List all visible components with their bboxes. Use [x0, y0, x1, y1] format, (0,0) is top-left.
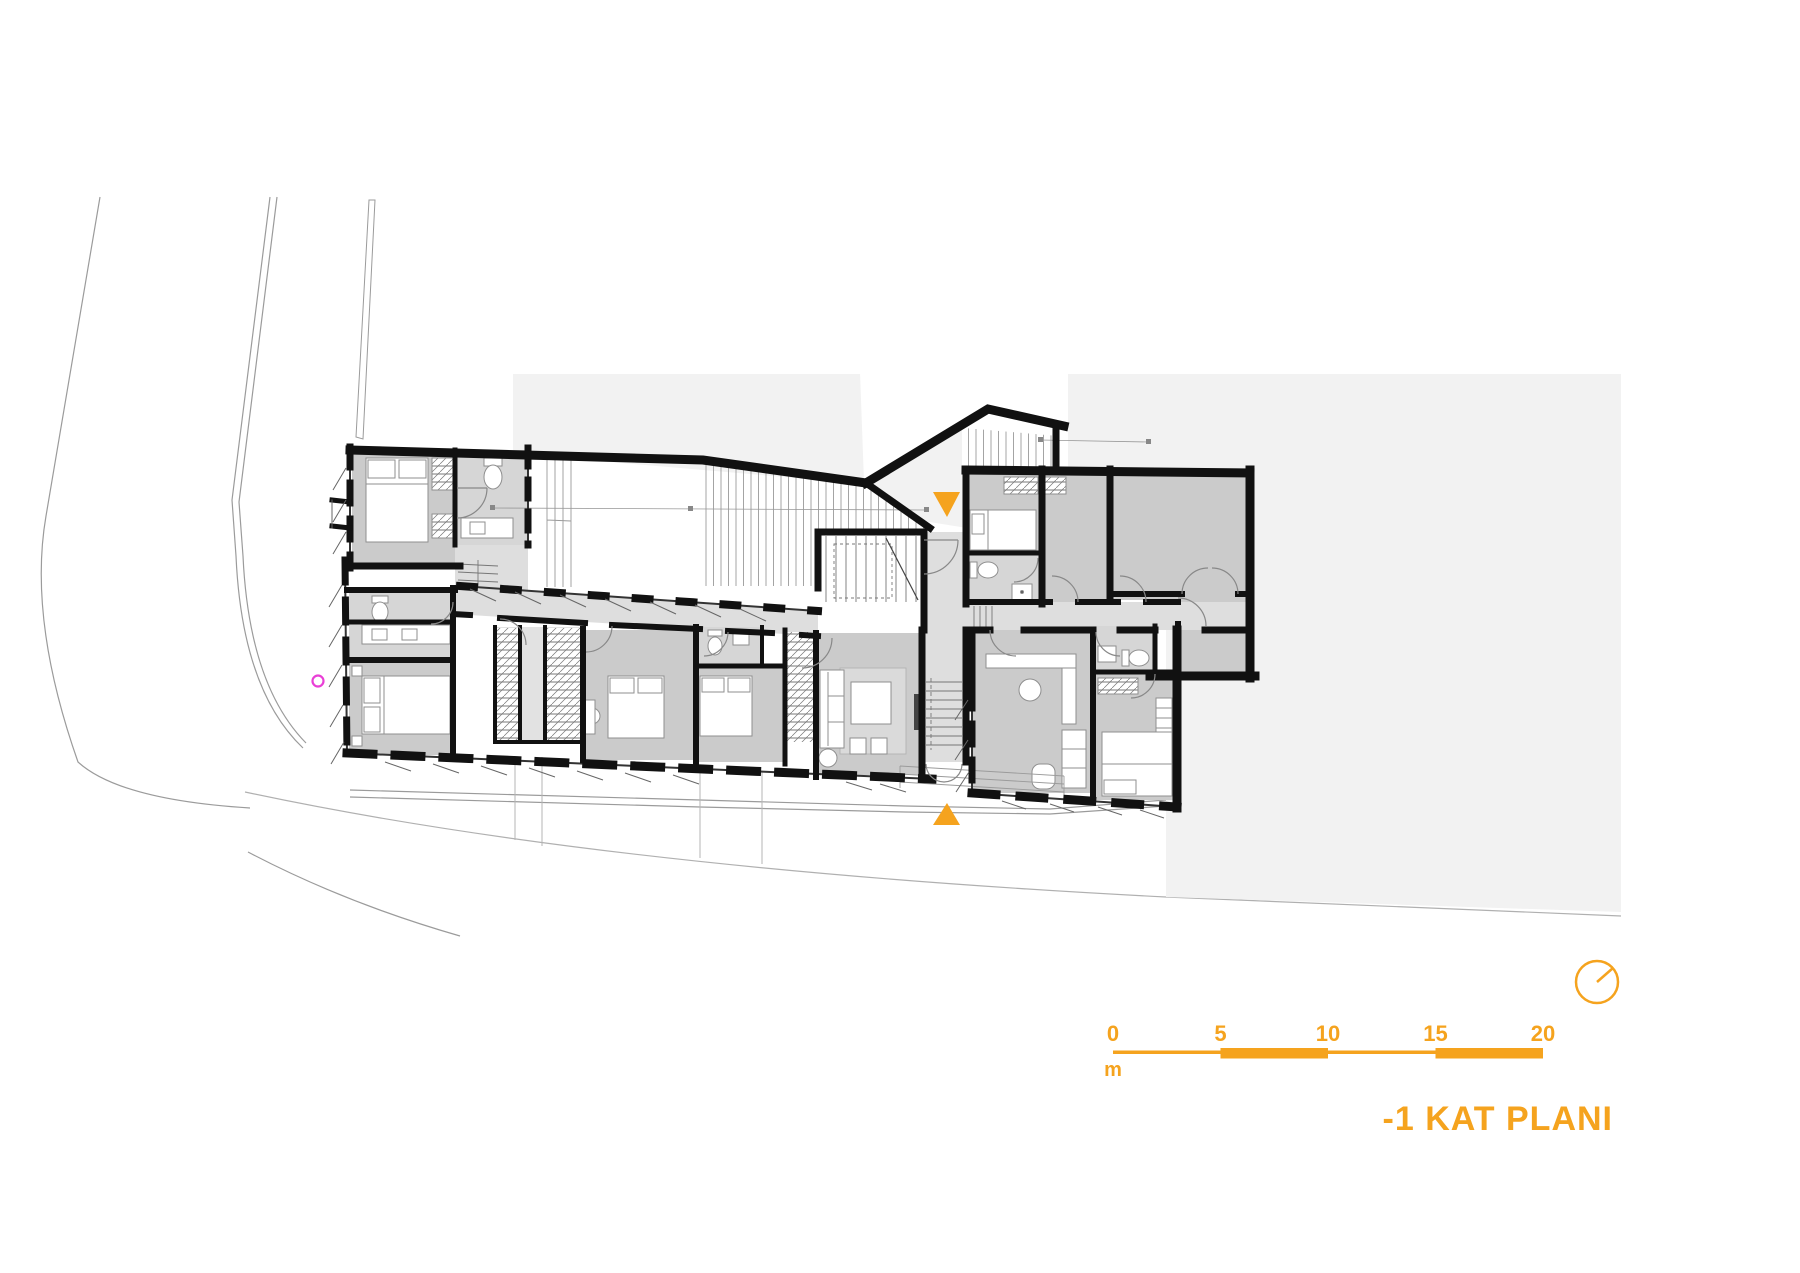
north-indicator-icon — [1576, 961, 1618, 1003]
floor-plan-drawing: 0 5 10 15 20 m -1 KAT PLANI — [0, 0, 1800, 1273]
plan-title: -1 KAT PLANI — [1383, 1100, 1613, 1138]
scale-label-5: 5 — [1214, 1021, 1226, 1046]
scale-label-10: 10 — [1316, 1021, 1340, 1046]
scale-label-15: 15 — [1423, 1021, 1447, 1046]
scale-bar-segments — [1113, 1048, 1543, 1059]
scale-label-20: 20 — [1531, 1021, 1555, 1046]
survey-point-icon — [313, 676, 324, 687]
scale-label-0: 0 — [1107, 1021, 1119, 1046]
scale-unit-label: m — [1104, 1059, 1122, 1081]
scale-bar: 0 5 10 15 20 m — [1104, 1021, 1555, 1081]
floor-plan-sheet: 0 5 10 15 20 m -1 KAT PLANI — [0, 0, 1800, 1273]
